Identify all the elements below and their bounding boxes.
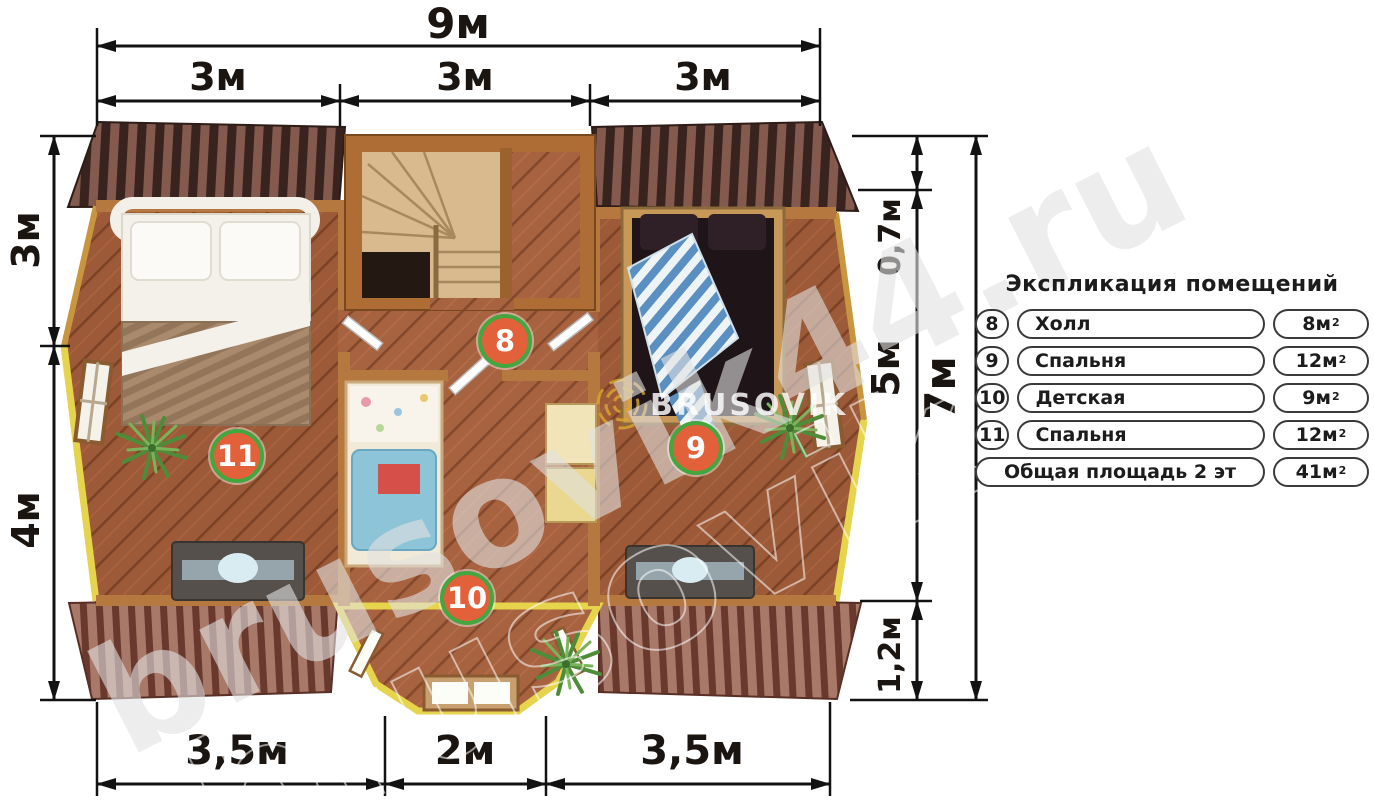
legend-total-area: 41м2: [1273, 457, 1369, 487]
legend-row: 10 Детская 9м2: [975, 383, 1369, 413]
legend-room-number: 11: [975, 420, 1009, 450]
legend-total-row: Общая площадь 2 эт 41м2: [975, 457, 1369, 487]
roof-top-left: [68, 122, 345, 207]
legend-total-name: Общая площадь 2 эт: [975, 457, 1265, 487]
area-value: 8м: [1302, 313, 1331, 335]
legend-room-number: 9: [975, 346, 1009, 376]
wall-hall-divider: [338, 370, 448, 381]
legend-room-name: Холл: [1017, 309, 1265, 339]
room-badge-10: 10: [440, 571, 494, 625]
legend-room-area: 8м2: [1273, 309, 1369, 339]
legend-title: Экспликация помещений: [975, 272, 1369, 297]
dim-right-seg-3: 1,2м: [871, 605, 911, 705]
dim-left-seg-1: 3м: [0, 200, 52, 280]
legend-room-number: 8: [975, 309, 1009, 339]
stair-doorway: [430, 298, 514, 310]
floor-plan-page: brusovik44 brusovik44.ru BRUSOVIK 9м 3м …: [0, 0, 1374, 808]
legend-room-number: 10: [975, 383, 1009, 413]
room-legend: Экспликация помещений 8 Холл 8м2 9 Спаль…: [975, 272, 1369, 494]
area-value: 9м: [1302, 387, 1331, 409]
brusovik-logo-text: BRUSOVIK: [650, 388, 848, 423]
dim-top-seg-1: 3м: [168, 56, 268, 98]
legend-row: 8 Холл 8м2: [975, 309, 1369, 339]
area-value: 12м: [1296, 424, 1338, 446]
pillow: [131, 222, 211, 280]
legend-row: 9 Спальня 12м2: [975, 346, 1369, 376]
pillow: [708, 214, 766, 250]
room-badge-9: 9: [669, 421, 723, 475]
dim-top-seg-2: 3м: [415, 56, 515, 98]
roof-top-right: [592, 122, 858, 211]
legend-room-area: 12м2: [1273, 420, 1369, 450]
legend-room-name: Спальня: [1017, 346, 1265, 376]
legend-room-area: 12м2: [1273, 346, 1369, 376]
double-bed-white: [116, 203, 314, 425]
landing-floor: [512, 152, 580, 298]
pillow: [220, 222, 300, 280]
dim-bottom-seg-3: 3,5м: [622, 727, 762, 775]
dim-top-total: 9м: [398, 2, 518, 46]
dim-top-seg-3: 3м: [653, 56, 753, 98]
area-sup: 2: [1332, 390, 1340, 403]
stair-opening: [362, 252, 430, 298]
area-sup: 2: [1339, 427, 1347, 440]
stairwell: [345, 135, 595, 310]
wall: [500, 148, 512, 300]
area-sup: 2: [1339, 464, 1347, 477]
legend-row: 11 Спальня 12м2: [975, 420, 1369, 450]
area-sup: 2: [1332, 316, 1340, 329]
area-value: 12м: [1296, 350, 1338, 372]
area-sup: 2: [1339, 353, 1347, 366]
area-value: 41м: [1296, 461, 1338, 483]
dim-left-seg-2: 4м: [0, 480, 52, 560]
room-badge-8: 8: [478, 314, 532, 368]
legend-room-area: 9м2: [1273, 383, 1369, 413]
legend-room-name: Спальня: [1017, 420, 1265, 450]
room-badge-11: 11: [210, 429, 264, 483]
legend-room-name: Детская: [1017, 383, 1265, 413]
